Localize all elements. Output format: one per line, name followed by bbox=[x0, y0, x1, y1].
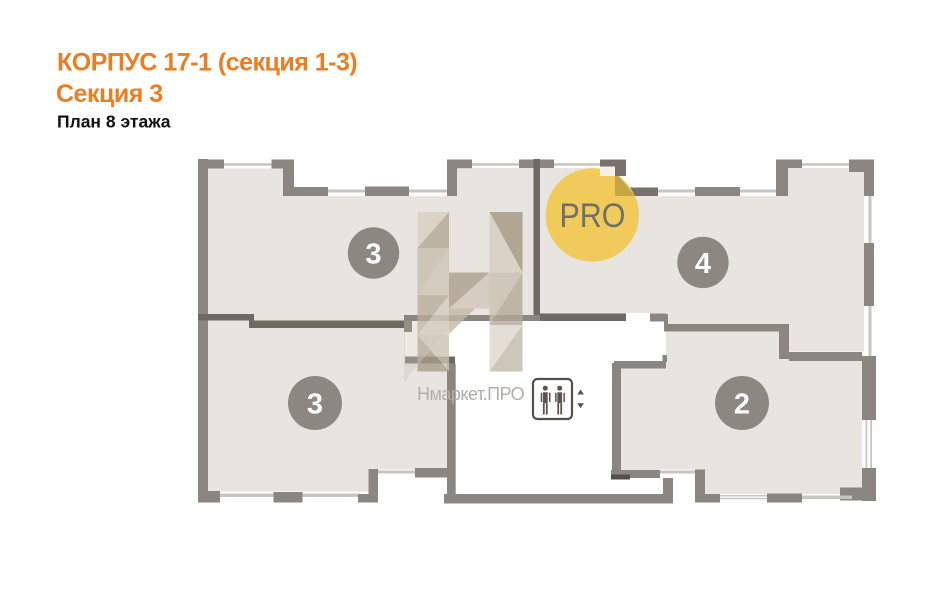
svg-text:2: 2 bbox=[734, 389, 750, 421]
svg-text:4: 4 bbox=[695, 248, 711, 280]
svg-text:Нмаркет.ПРО: Нмаркет.ПРО bbox=[417, 384, 525, 404]
svg-text:Секция 3: Секция 3 bbox=[56, 80, 163, 108]
svg-text:КОРПУС 17-1 (секция 1-3): КОРПУС 17-1 (секция 1-3) bbox=[57, 48, 357, 76]
svg-text:План 8 этажа: План 8 этажа bbox=[57, 112, 171, 132]
svg-text:PRO: PRO bbox=[560, 197, 626, 235]
svg-text:3: 3 bbox=[365, 239, 381, 271]
svg-text:3: 3 bbox=[307, 389, 323, 421]
